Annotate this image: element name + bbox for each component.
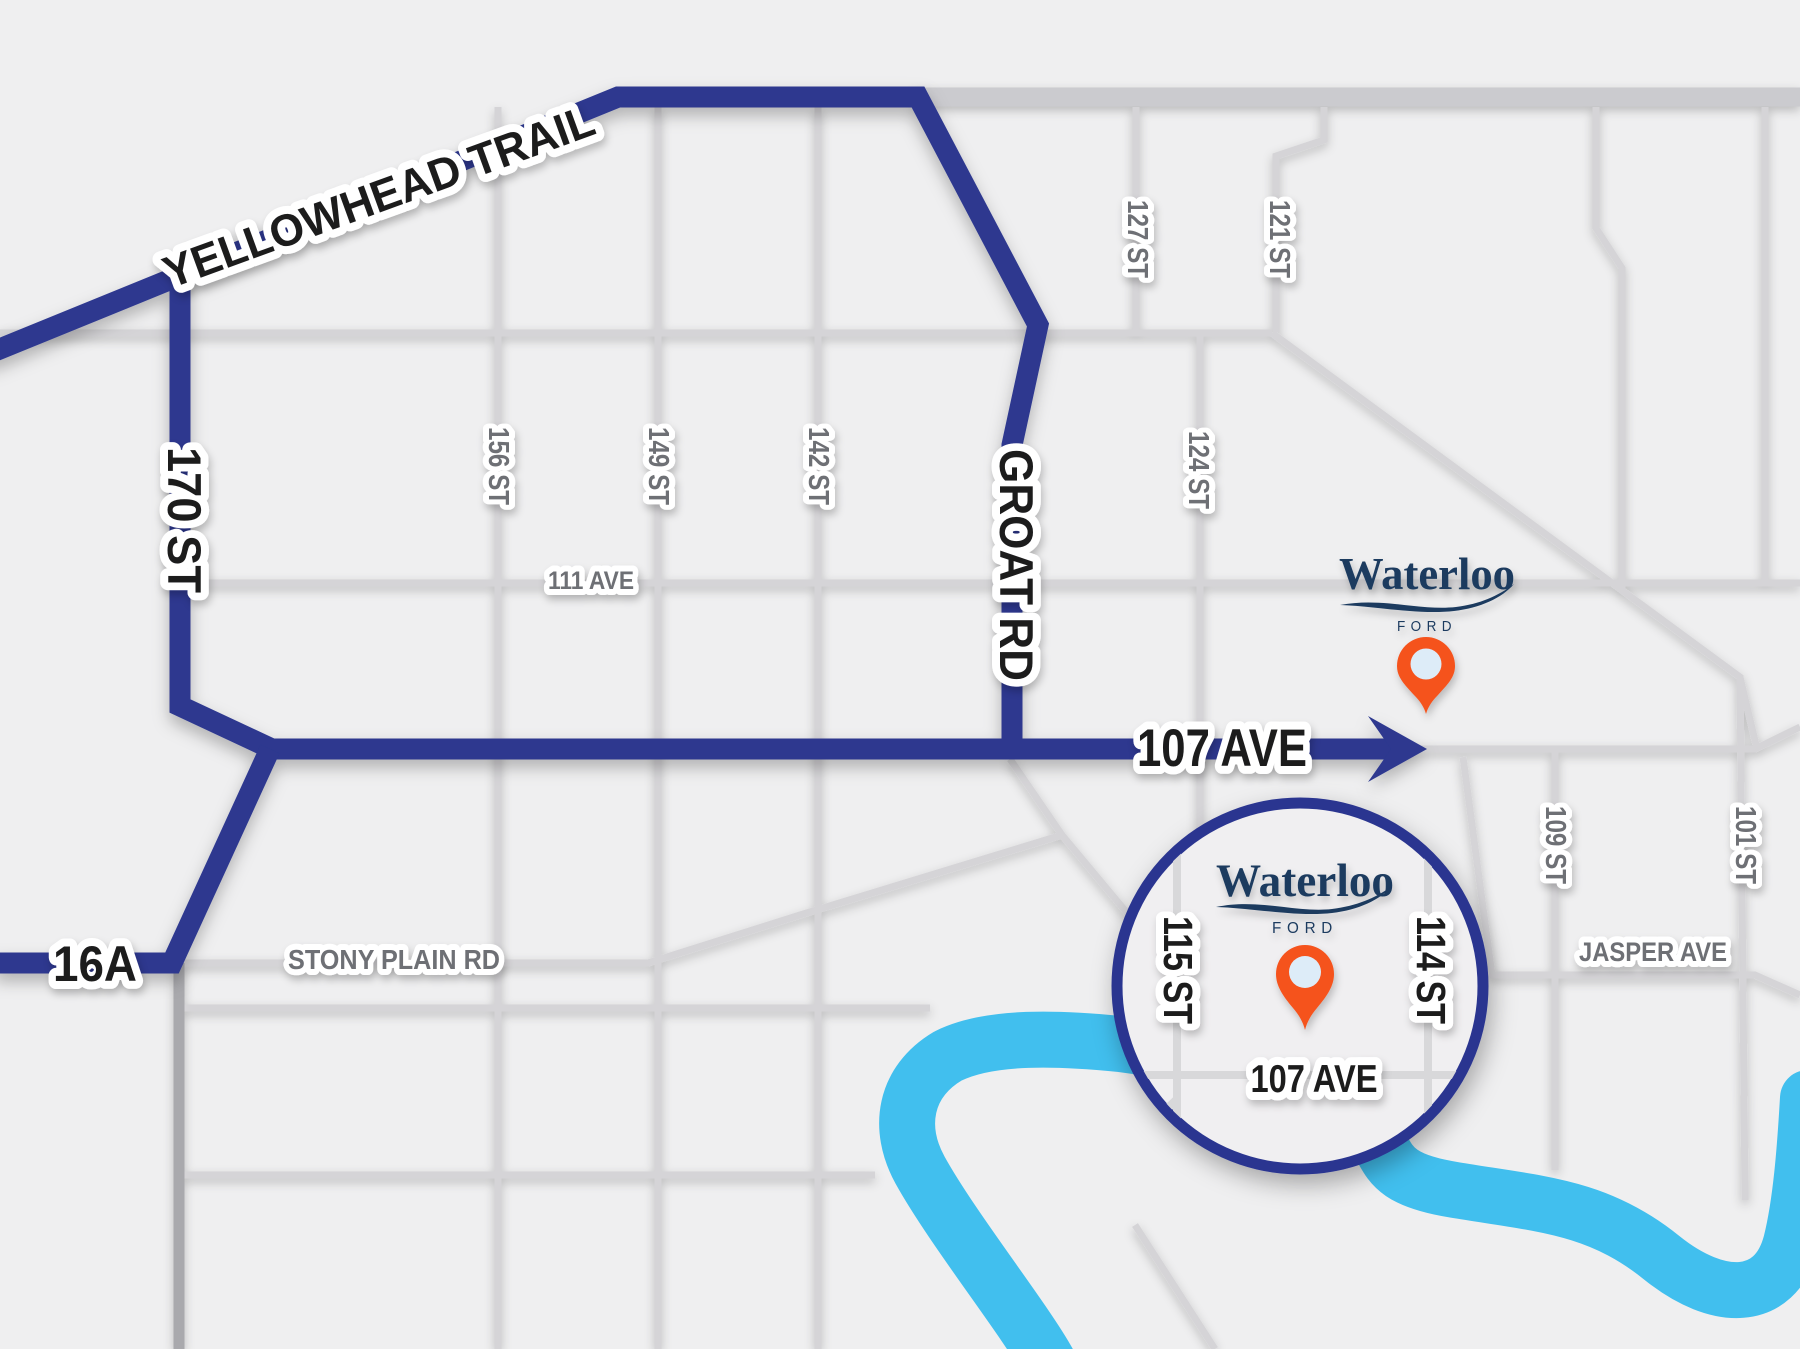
svg-text:115 ST: 115 ST: [1155, 916, 1201, 1024]
svg-text:127 ST: 127 ST: [1121, 200, 1153, 278]
svg-text:FORD: FORD: [1272, 920, 1338, 937]
svg-text:109 ST: 109 ST: [1539, 806, 1571, 884]
svg-text:16A: 16A: [53, 936, 137, 992]
svg-text:FORD: FORD: [1397, 618, 1457, 635]
svg-text:124 ST: 124 ST: [1182, 431, 1214, 509]
svg-text:Waterloo: Waterloo: [1216, 855, 1394, 907]
svg-text:170 ST: 170 ST: [158, 447, 211, 593]
svg-text:Waterloo: Waterloo: [1339, 548, 1515, 599]
svg-text:111 AVE: 111 AVE: [548, 567, 634, 595]
svg-text:JASPER AVE: JASPER AVE: [1579, 937, 1727, 967]
svg-text:142 ST: 142 ST: [802, 427, 834, 505]
svg-text:121 ST: 121 ST: [1263, 200, 1295, 278]
svg-text:107 AVE: 107 AVE: [1251, 1058, 1378, 1101]
svg-text:107 AVE: 107 AVE: [1137, 719, 1307, 778]
svg-text:149 ST: 149 ST: [642, 427, 674, 505]
svg-text:GROAT RD: GROAT RD: [990, 449, 1043, 681]
svg-text:STONY PLAIN RD: STONY PLAIN RD: [288, 944, 500, 975]
svg-text:101 ST: 101 ST: [1729, 806, 1761, 884]
svg-text:114 ST: 114 ST: [1408, 916, 1454, 1024]
svg-text:156 ST: 156 ST: [482, 427, 514, 505]
